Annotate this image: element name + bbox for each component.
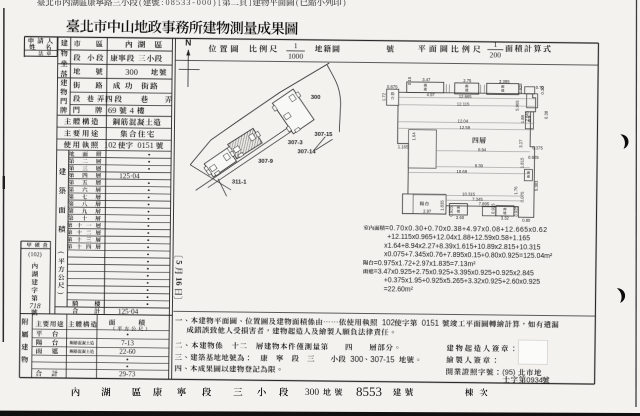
svg-text:N: N bbox=[185, 38, 191, 48]
svg-text:69: 69 bbox=[108, 105, 117, 115]
svg-text:300: 300 bbox=[311, 95, 321, 101]
svg-text:0.80: 0.80 bbox=[522, 218, 531, 223]
svg-text:1: 1 bbox=[294, 41, 298, 50]
svg-text:5.965: 5.965 bbox=[514, 100, 519, 111]
svg-text:1.835: 1.835 bbox=[440, 200, 445, 211]
svg-text:7-13: 7-13 bbox=[121, 339, 134, 347]
svg-text:8.94: 8.94 bbox=[478, 147, 487, 152]
svg-text:0: 0 bbox=[202, 0, 206, 7]
svg-text:3: 3 bbox=[181, 0, 185, 7]
svg-text:0.925: 0.925 bbox=[490, 203, 495, 214]
svg-text:307-15: 307-15 bbox=[370, 355, 395, 364]
svg-text:718: 718 bbox=[29, 301, 41, 310]
svg-text:2.97: 2.97 bbox=[423, 209, 432, 214]
svg-text:3.47: 3.47 bbox=[422, 77, 431, 82]
svg-text:(: ( bbox=[296, 0, 299, 7]
svg-text:0.925: 0.925 bbox=[449, 205, 454, 216]
svg-text:1.64: 1.64 bbox=[411, 132, 416, 141]
svg-text:4.97: 4.97 bbox=[427, 92, 436, 97]
svg-text:1: 1 bbox=[493, 40, 497, 49]
svg-text:8553: 8553 bbox=[356, 384, 382, 399]
svg-text:5: 5 bbox=[176, 0, 180, 7]
svg-text:125·04: 125·04 bbox=[119, 172, 140, 180]
svg-text:0151: 0151 bbox=[137, 141, 153, 150]
svg-text:12.115: 12.115 bbox=[457, 102, 470, 107]
svg-text:29-73: 29-73 bbox=[119, 370, 136, 378]
svg-text:[: [ bbox=[218, 0, 221, 7]
svg-text:2.75: 2.75 bbox=[463, 78, 472, 83]
svg-text:125·04: 125·04 bbox=[118, 307, 139, 315]
svg-text:300: 300 bbox=[305, 388, 320, 398]
svg-text:1.76: 1.76 bbox=[513, 186, 518, 195]
svg-text:0.075: 0.075 bbox=[519, 191, 524, 202]
svg-text:1.88: 1.88 bbox=[520, 114, 525, 123]
svg-text:0.905: 0.905 bbox=[528, 155, 539, 160]
svg-text:300: 300 bbox=[350, 355, 364, 364]
svg-text:0151: 0151 bbox=[422, 319, 439, 328]
svg-text:): ) bbox=[343, 0, 346, 7]
svg-text:(: ( bbox=[139, 0, 142, 7]
svg-text:7.895: 7.895 bbox=[479, 201, 490, 206]
svg-text:1.815: 1.815 bbox=[519, 157, 524, 168]
svg-text:1.165: 1.165 bbox=[398, 144, 409, 149]
svg-text:(102): (102) bbox=[28, 251, 41, 258]
svg-text:): ) bbox=[213, 0, 216, 7]
svg-text:200: 200 bbox=[490, 51, 502, 60]
svg-text:0.38: 0.38 bbox=[543, 110, 548, 119]
svg-text:1.72: 1.72 bbox=[381, 92, 386, 101]
svg-text:3.32: 3.32 bbox=[501, 215, 510, 220]
svg-text:0934: 0934 bbox=[526, 375, 543, 384]
svg-text:10.69: 10.69 bbox=[457, 169, 468, 174]
svg-text:307-14: 307-14 bbox=[297, 149, 316, 155]
svg-text:0.15: 0.15 bbox=[407, 76, 412, 85]
svg-text:16: 16 bbox=[174, 277, 184, 286]
svg-text:0: 0 bbox=[166, 0, 170, 7]
svg-text:0: 0 bbox=[197, 0, 201, 7]
svg-text:2.845: 2.845 bbox=[524, 110, 529, 121]
svg-text:]: ] bbox=[249, 0, 252, 7]
svg-text:0: 0 bbox=[207, 0, 211, 7]
svg-text:0.30: 0.30 bbox=[540, 86, 545, 95]
svg-text:0.925: 0.925 bbox=[513, 205, 518, 216]
svg-text:102: 102 bbox=[104, 141, 116, 150]
svg-text:5.383: 5.383 bbox=[534, 180, 539, 191]
svg-text:22-60: 22-60 bbox=[119, 348, 136, 356]
svg-text:5: 5 bbox=[174, 260, 184, 264]
svg-text:0.375: 0.375 bbox=[532, 145, 543, 150]
svg-text:0.925: 0.925 bbox=[518, 83, 523, 94]
svg-text:8: 8 bbox=[171, 0, 175, 7]
svg-text:3.27: 3.27 bbox=[518, 139, 523, 148]
svg-text:300: 300 bbox=[125, 67, 138, 77]
svg-text:307-3: 307-3 bbox=[288, 140, 304, 146]
svg-text:12.59: 12.59 bbox=[460, 125, 471, 130]
svg-text:12.665: 12.665 bbox=[459, 94, 473, 99]
svg-text:=22.60m²: =22.60m² bbox=[384, 286, 414, 293]
svg-text:102: 102 bbox=[382, 318, 395, 327]
svg-text:-: - bbox=[192, 0, 195, 7]
svg-text:307-15: 307-15 bbox=[314, 132, 333, 138]
svg-text:307-9: 307-9 bbox=[258, 159, 274, 165]
svg-text:(95): (95) bbox=[502, 368, 515, 377]
svg-text:311-1: 311-1 bbox=[232, 179, 247, 185]
svg-text:12.04: 12.04 bbox=[458, 118, 469, 123]
svg-text:1000: 1000 bbox=[288, 52, 303, 61]
svg-text::: : bbox=[161, 0, 163, 7]
svg-text:3.395: 3.395 bbox=[499, 79, 510, 84]
svg-text:2.60: 2.60 bbox=[456, 215, 465, 220]
svg-text:3: 3 bbox=[186, 0, 190, 7]
svg-text:=0.975x1.72+2.97x1.835=7.13m²: =0.975x1.72+2.97x1.835=7.13m² bbox=[374, 260, 476, 268]
svg-text:0.875: 0.875 bbox=[387, 84, 398, 89]
svg-text:8.39: 8.39 bbox=[475, 163, 484, 168]
